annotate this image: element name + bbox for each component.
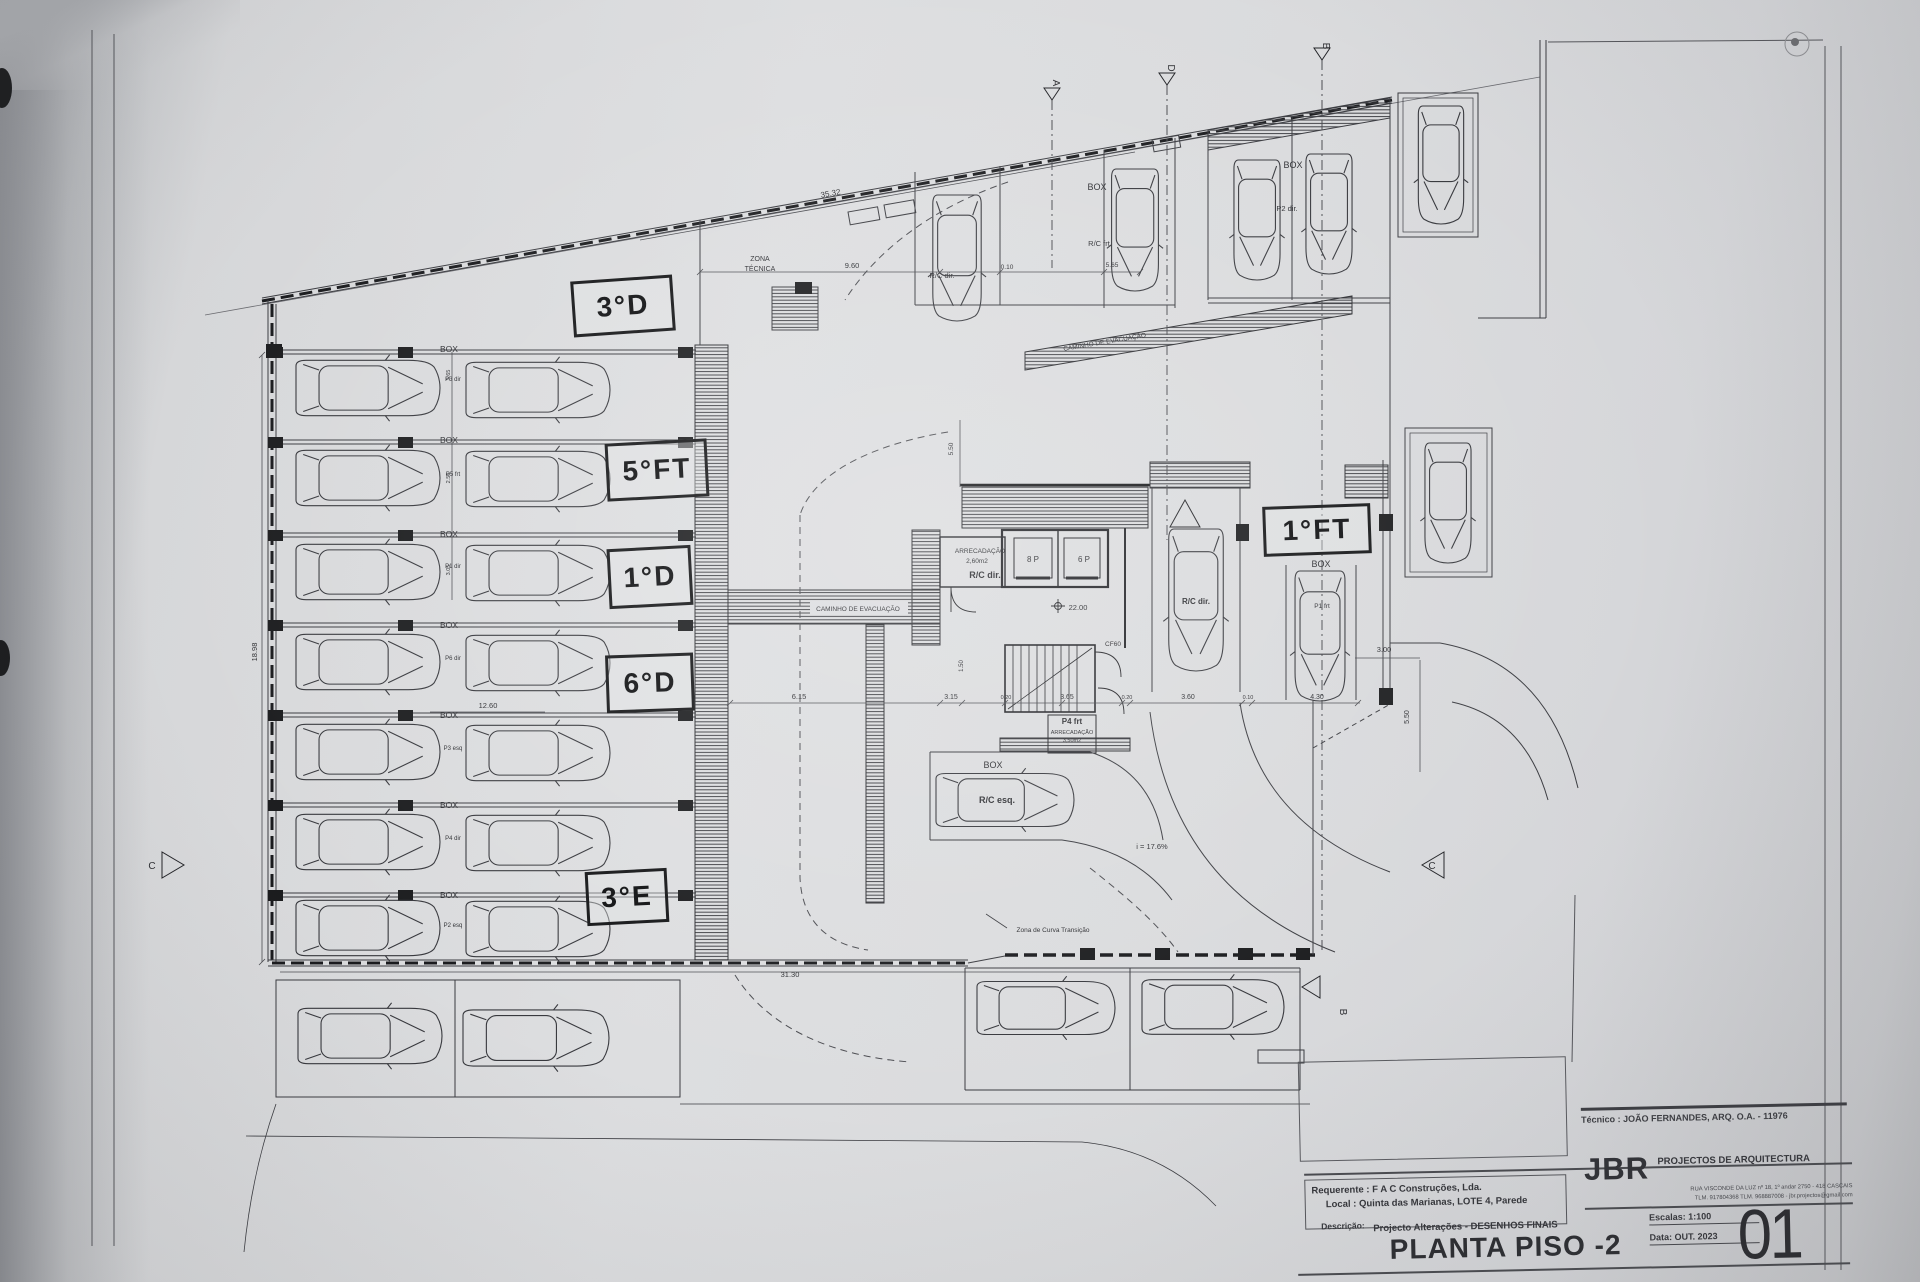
plan-label: 2.50 (446, 473, 452, 484)
car-icon (1107, 169, 1163, 291)
column-square (398, 347, 413, 358)
car-icon (298, 1003, 442, 1069)
firm-tagline: PROJECTOS DE ARQUITECTURA (1657, 1153, 1810, 1167)
plan-label: BOX (440, 890, 458, 900)
car-icon (296, 895, 440, 961)
plan-label: A (1050, 80, 1061, 87)
divider (1581, 1102, 1847, 1111)
plan-label: BOX (440, 344, 458, 354)
revision-box (1298, 1056, 1568, 1162)
plan-label: 5.50 (1404, 710, 1411, 724)
handwritten-note: 6°D (605, 652, 695, 713)
plan-label: 5.65 (1106, 262, 1119, 269)
plan-label: 31.30 (781, 970, 800, 979)
column-square (398, 710, 413, 721)
descricao-label: Descrição: (1321, 1220, 1365, 1231)
column-square (398, 530, 413, 541)
plan-label: BOX (1283, 160, 1302, 170)
plan-label: 8 P (1027, 555, 1039, 564)
plan-label: 2,60m2 (966, 558, 988, 565)
tecnico-row: Técnico : JOÃO FERNANDES, ARQ. O.A. - 11… (1581, 1102, 1847, 1125)
handwritten-note: 5°FT (605, 438, 710, 501)
plan-label: ARRECADAÇÃO (955, 546, 1005, 555)
plan-label: 12.60 (479, 701, 498, 710)
plan-label: P2 dir. (1276, 204, 1297, 213)
plan-label: 3.60 (1181, 694, 1195, 701)
section-markers (162, 48, 1444, 998)
plan-label: 4.30 (1310, 694, 1324, 701)
plan-label: R/C dir. (969, 570, 1001, 580)
car-icon (1290, 571, 1350, 701)
plan-label: R/C esq. (979, 795, 1015, 805)
plan-label: BOX (440, 710, 458, 720)
plan-label: TÉCNICA (745, 264, 776, 273)
plan-label: BOX (440, 620, 458, 630)
plan-label: 5.50 (948, 442, 955, 455)
column-square (398, 620, 413, 631)
plan-label: 3.65 (446, 370, 452, 381)
handwritten-note: 1°D (606, 545, 693, 609)
plan-label: BOX (440, 529, 458, 539)
plan-label: R/C dir. (1182, 597, 1210, 606)
column-square (678, 620, 693, 631)
plan-label: D (1165, 64, 1176, 71)
column-square (268, 890, 283, 901)
plan-label: B (1337, 1009, 1348, 1016)
column-square (268, 800, 283, 811)
handwritten-note: 3°D (570, 275, 676, 338)
car-icon (296, 539, 440, 605)
plan-label: 0.10 (1243, 695, 1254, 701)
plan-label: P1 frt (1314, 603, 1330, 610)
plan-label: 18.98 (250, 643, 259, 662)
plan-label: P3 esq (444, 746, 463, 752)
plan-label: 1.50 (959, 660, 965, 672)
car-icon (1414, 106, 1468, 224)
plan-label: 3.05 (446, 565, 452, 576)
plan-label: 0.20 (1122, 695, 1133, 701)
column-square (678, 800, 693, 811)
plan-label: 3,50m2 (1063, 738, 1081, 744)
car-icon (1301, 154, 1356, 274)
plan-label: 0.20 (1001, 695, 1012, 701)
cars-layer (296, 106, 1476, 1072)
plan-label: 35.32 (820, 187, 842, 199)
plan-label: P6 dir (445, 656, 461, 662)
car-icon (466, 446, 610, 512)
plan-label: 6 P (1078, 555, 1090, 564)
plan-label: 0.10 (1001, 264, 1014, 271)
car-icon (296, 629, 440, 695)
car-icon (466, 540, 610, 606)
car-icon (296, 355, 440, 421)
plan-label: BOX (440, 435, 458, 445)
car-icon (1420, 443, 1475, 563)
column-square (268, 347, 283, 358)
car-icon (466, 357, 610, 423)
plan-label: CF60 (1105, 641, 1121, 648)
plan-label: R/C frt (1088, 239, 1111, 248)
column-square (268, 530, 283, 541)
car-icon (463, 1004, 609, 1071)
dimension-lines (259, 152, 1420, 972)
column-square (678, 890, 693, 901)
car-icon (1229, 160, 1284, 280)
car-icon (296, 445, 440, 511)
column-square (398, 890, 413, 901)
tecnico-text: Técnico : JOÃO FERNANDES, ARQ. O.A. - 11… (1581, 1111, 1788, 1125)
plan-label: BOX (1087, 182, 1106, 192)
column-square (678, 710, 693, 721)
car-icon (466, 810, 610, 876)
plan-label: 22.00 (1069, 603, 1088, 612)
plan-label: 3.00 (1377, 645, 1392, 654)
plan-label: ARRECADAÇÃO (1051, 729, 1094, 736)
title-block: Técnico : JOÃO FERNANDES, ARQ. O.A. - 11… (1294, 1046, 1859, 1282)
car-icon (466, 720, 610, 786)
plan-label: 3.65 (1060, 694, 1074, 701)
column-square (398, 437, 413, 448)
plan-label: P2 esq (444, 923, 463, 929)
plan-label: BOX (440, 800, 458, 810)
plan-label: CAMINHO DE EVACUAÇÃO (816, 604, 900, 613)
plan-label: P4 frt (1062, 717, 1083, 726)
plan-label: 3.15 (944, 694, 958, 701)
drawing-title: PLANTA PISO -2 (1389, 1229, 1621, 1266)
plan-label: 9.60 (845, 261, 860, 270)
handwritten-note: 3°E (585, 868, 670, 926)
plan-label: C (148, 861, 155, 872)
handwritten-note: 1°FT (1262, 503, 1372, 557)
plan-label: BOX (1311, 559, 1330, 569)
column-square (268, 620, 283, 631)
plan-label: P4 dir (445, 836, 461, 842)
column-square (268, 437, 283, 448)
sheet-number: 01 (1737, 1193, 1802, 1274)
plan-label: BOX (983, 760, 1002, 770)
column-square (678, 530, 693, 541)
car-icon (296, 719, 440, 785)
plan-label: 6.15 (792, 692, 807, 701)
car-icon (296, 809, 440, 875)
plan-label: ZONA (750, 256, 770, 263)
firm-block: JBR PROJECTOS DE ARQUITECTURA RUA VISCON… (1584, 1146, 1853, 1210)
core-stairs-elevators (940, 500, 1200, 753)
car-icon (1142, 974, 1284, 1039)
photographed-floor-plan: ZONATÉCNICA35.329.600.105.65R/C dir.BOXR… (0, 0, 1920, 1282)
plan-label: R/C dir. (929, 271, 954, 280)
car-icon (977, 976, 1115, 1040)
column-square (678, 347, 693, 358)
bottom-parking (244, 948, 1310, 1252)
firm-logo: JBR (1584, 1150, 1650, 1187)
column-square (268, 710, 283, 721)
plan-label: i = 17.6% (1136, 842, 1168, 851)
car-icon (466, 630, 610, 696)
plan-label: Zona de Curva Transição (1017, 927, 1090, 934)
plan-label: C (1428, 861, 1435, 872)
plan-label: B (1320, 43, 1331, 50)
column-square (398, 800, 413, 811)
